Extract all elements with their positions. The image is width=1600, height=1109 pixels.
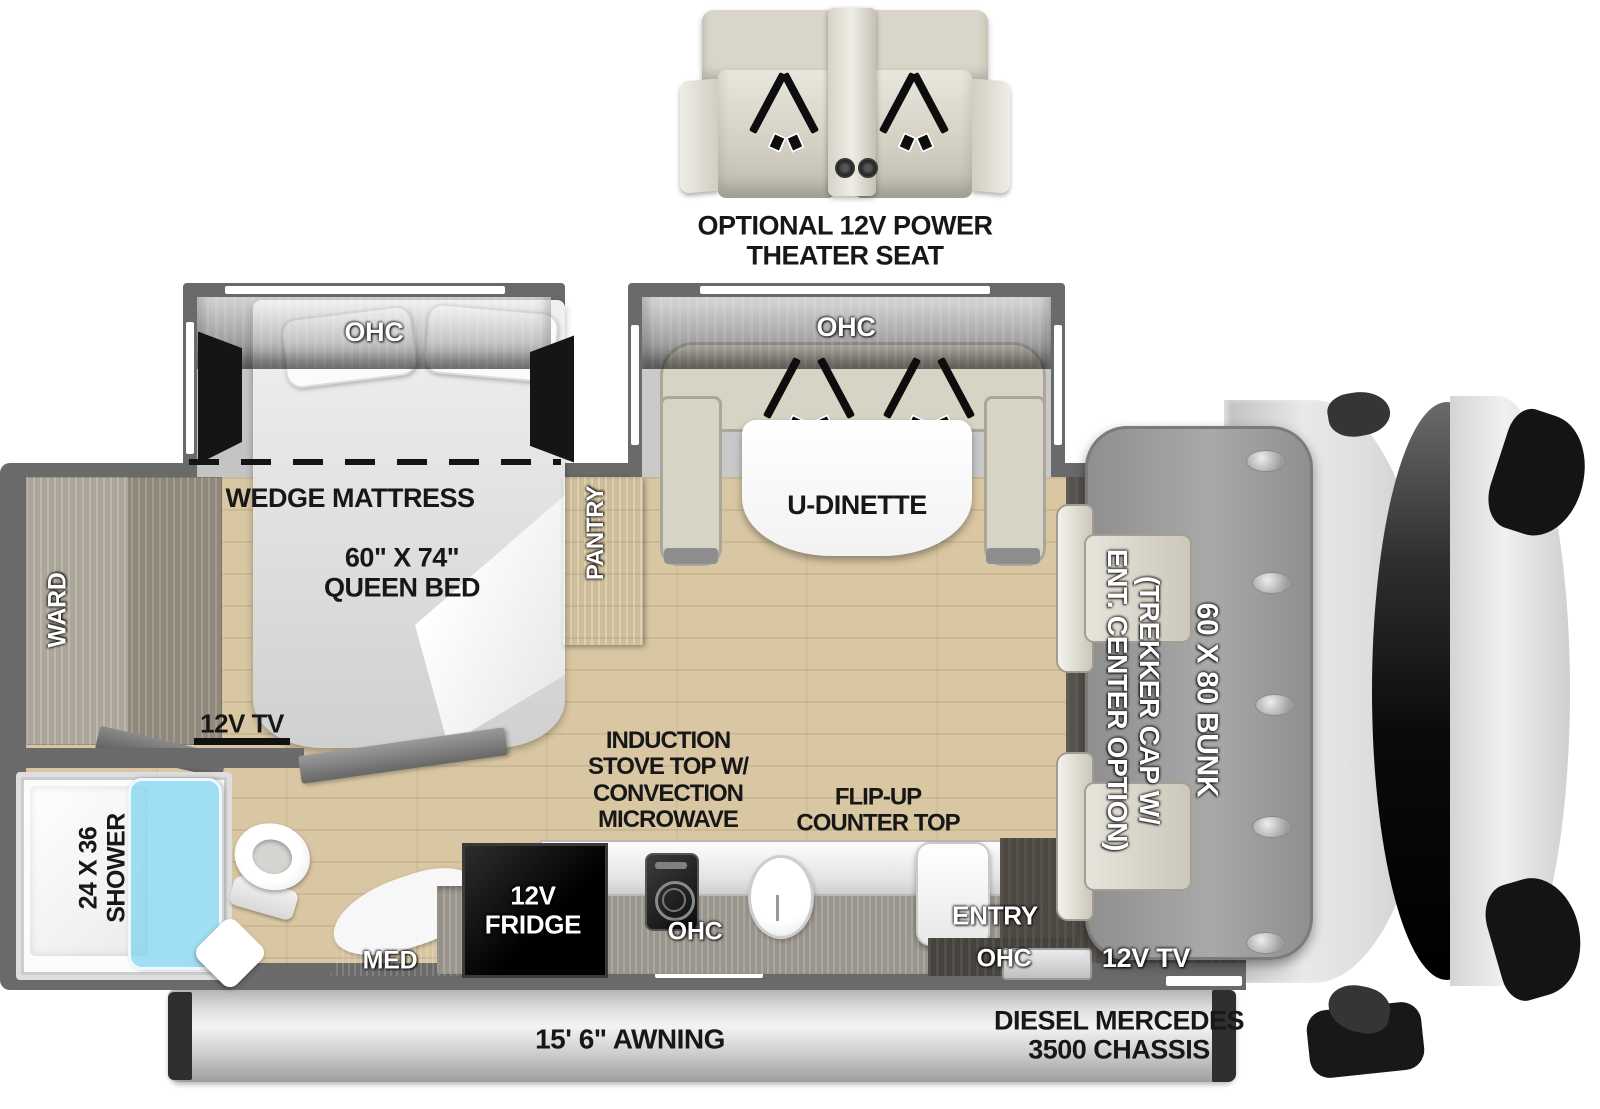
rv-floorplan: OPTIONAL 12V POWER THEATER SEAT 15' 6" A…: [0, 0, 1600, 1109]
bedroom-tv-label: 12V TV: [200, 710, 284, 739]
wardrobe-label: WARD: [44, 572, 72, 647]
bathroom-wall: [14, 748, 304, 768]
window: [700, 286, 990, 294]
pantry-label: PANTRY: [583, 486, 609, 580]
cupholder-icon: [835, 158, 855, 178]
cupholder-icon: [858, 158, 878, 178]
cap-rivet: [1252, 816, 1292, 838]
sink-faucet: [776, 895, 779, 921]
sink-icon: [748, 855, 814, 939]
cap-rivet: [1246, 450, 1286, 472]
flipup-label: FLIP-UP COUNTER TOP: [796, 785, 959, 838]
window: [1054, 325, 1062, 445]
fridge-label: 12V FRIDGE: [485, 881, 581, 938]
cap-rivet: [1246, 932, 1286, 954]
window: [631, 325, 639, 445]
entry-ohc-label: OHC: [977, 945, 1032, 973]
dinette-bench-arm: [984, 396, 1046, 566]
shower-label: 24 X 36 SHOWER: [76, 813, 131, 923]
bedroom-ohc-label: OHC: [344, 318, 403, 348]
theater-armrest-left: [680, 78, 720, 193]
window: [225, 286, 505, 294]
awning-label: 15' 6" AWNING: [535, 1025, 725, 1056]
window: [198, 326, 242, 464]
cab-tv-label: 12V TV: [1102, 944, 1190, 974]
theater-seat-graphic: [680, 8, 1010, 203]
trekker-cap-label: (TREKKER CAP W/ ENT. CENTER OPTION): [1101, 549, 1165, 851]
kitchen-ohc-label: OHC: [668, 918, 723, 946]
queen-bed-label: 60" X 74" QUEEN BED: [324, 543, 480, 602]
entry-label: ENTRY: [952, 902, 1038, 931]
window: [186, 322, 194, 454]
cap-rivet: [1252, 572, 1292, 594]
wedge-mattress-label: WEDGE MATTRESS: [226, 484, 475, 514]
window: [530, 330, 574, 468]
stove-label: INDUCTION STOVE TOP W/ CONVECTION MICROW…: [588, 728, 748, 834]
bedroom-tv-underline: [194, 738, 290, 745]
dinette-bench-arm: [660, 396, 722, 566]
stove-burner-inner: [662, 888, 686, 912]
dinette-bench-skirt: [664, 548, 718, 564]
slideout-dash-line: [189, 459, 561, 465]
dinette-ohc-label: OHC: [816, 313, 875, 343]
stove-vent: [655, 862, 687, 869]
dinette-table: [742, 420, 972, 556]
cab-tv-bar: [1166, 976, 1242, 986]
dinette-table-label: U-DINETTE: [787, 491, 927, 521]
theater-seat-label: OPTIONAL 12V POWER THEATER SEAT: [697, 211, 992, 270]
dinette-bench-skirt: [986, 548, 1040, 564]
theater-armrest-right: [970, 78, 1010, 193]
med-label: MED: [363, 947, 418, 975]
chassis-label: DIESEL MERCEDES 3500 CHASSIS: [994, 1006, 1244, 1063]
cap-rivet: [1255, 694, 1295, 716]
bunk-label: 60 X 80 BUNK: [1189, 603, 1224, 798]
awning-end-cap: [168, 992, 192, 1080]
